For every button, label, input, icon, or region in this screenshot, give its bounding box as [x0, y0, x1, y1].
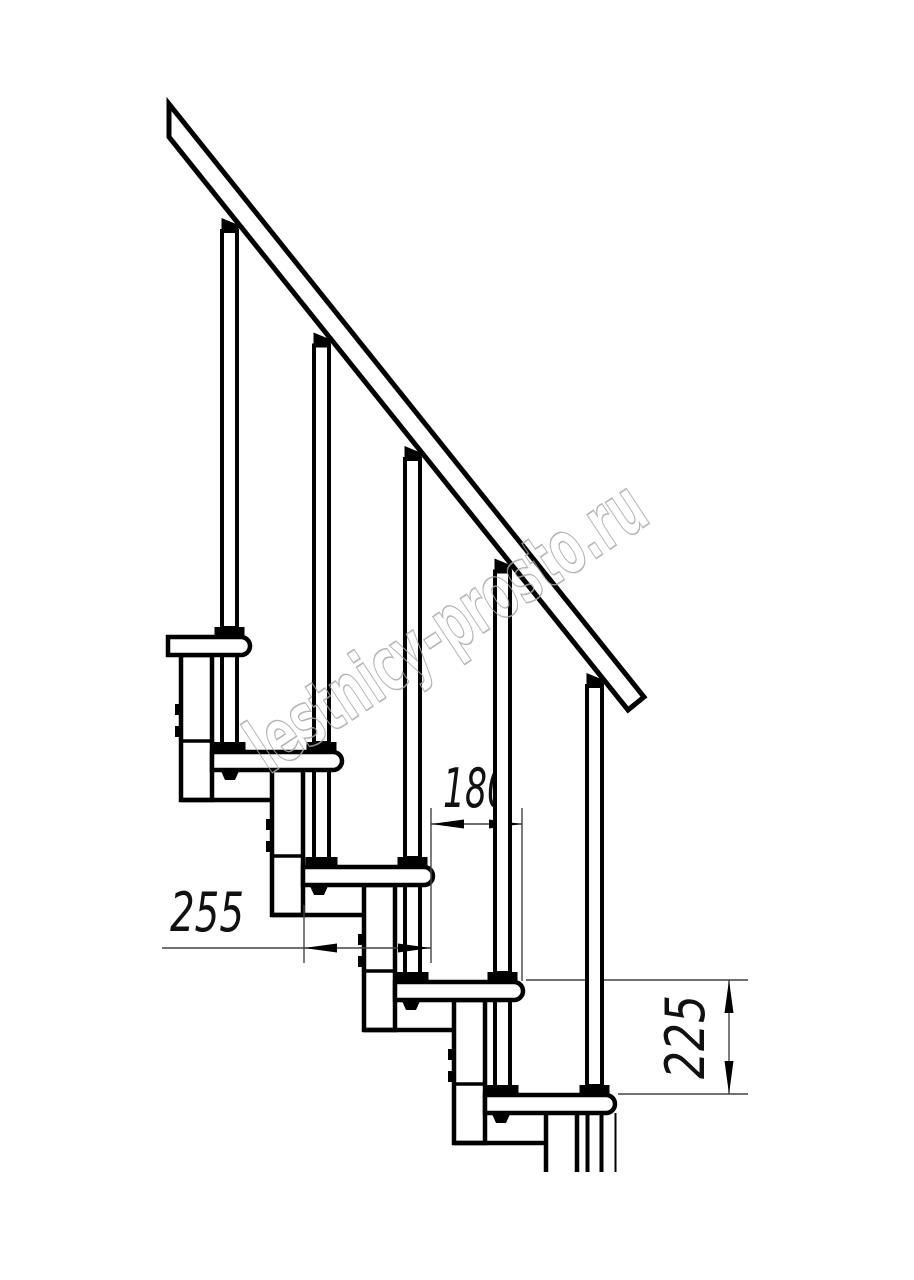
arrowhead-up	[725, 980, 734, 1013]
arrowhead-left	[304, 944, 337, 953]
tread-1	[168, 637, 250, 655]
spacer-tube-1	[222, 655, 237, 752]
bolt-tab	[358, 956, 365, 967]
spacer-flange	[397, 972, 429, 983]
spacer-flange	[306, 857, 338, 868]
tread-3	[303, 867, 433, 885]
spacer-flange	[487, 1085, 519, 1096]
spacer-tube-2	[314, 770, 329, 867]
bolt-tab	[448, 1071, 455, 1082]
bolt-tab	[175, 726, 182, 737]
column-module-5-cut	[546, 1113, 616, 1172]
arrowhead-left	[431, 820, 464, 829]
staircase-drawing: 255 180 225	[0, 0, 914, 1280]
clamp-bolt	[310, 886, 328, 895]
clamp-bolt	[492, 1114, 510, 1123]
tread-5	[485, 1095, 615, 1113]
tread-4	[395, 982, 523, 1000]
spacer-flange	[214, 742, 246, 753]
spacer-tube-3	[405, 885, 420, 982]
dimension-label-255: 255	[170, 881, 244, 944]
arrowhead-down	[725, 1061, 734, 1094]
dimension-label-225: 225	[654, 995, 717, 1079]
bolt-tab	[266, 841, 273, 852]
baluster-5	[587, 686, 602, 1086]
bolt-tab	[448, 1049, 455, 1060]
spacer-tube-4	[495, 1000, 510, 1095]
dimension-step-rise: 225	[526, 980, 748, 1094]
bolt-tab	[175, 704, 182, 715]
clamp-bolt	[402, 1001, 420, 1010]
bolt-tab	[266, 819, 273, 830]
spacer-tube-5-cut	[588, 1113, 602, 1172]
clamp-bolt	[221, 771, 239, 780]
bolt-tab	[358, 934, 365, 945]
baluster-1	[222, 231, 237, 628]
staircase-drawing-canvas: 255 180 225	[0, 0, 914, 1280]
